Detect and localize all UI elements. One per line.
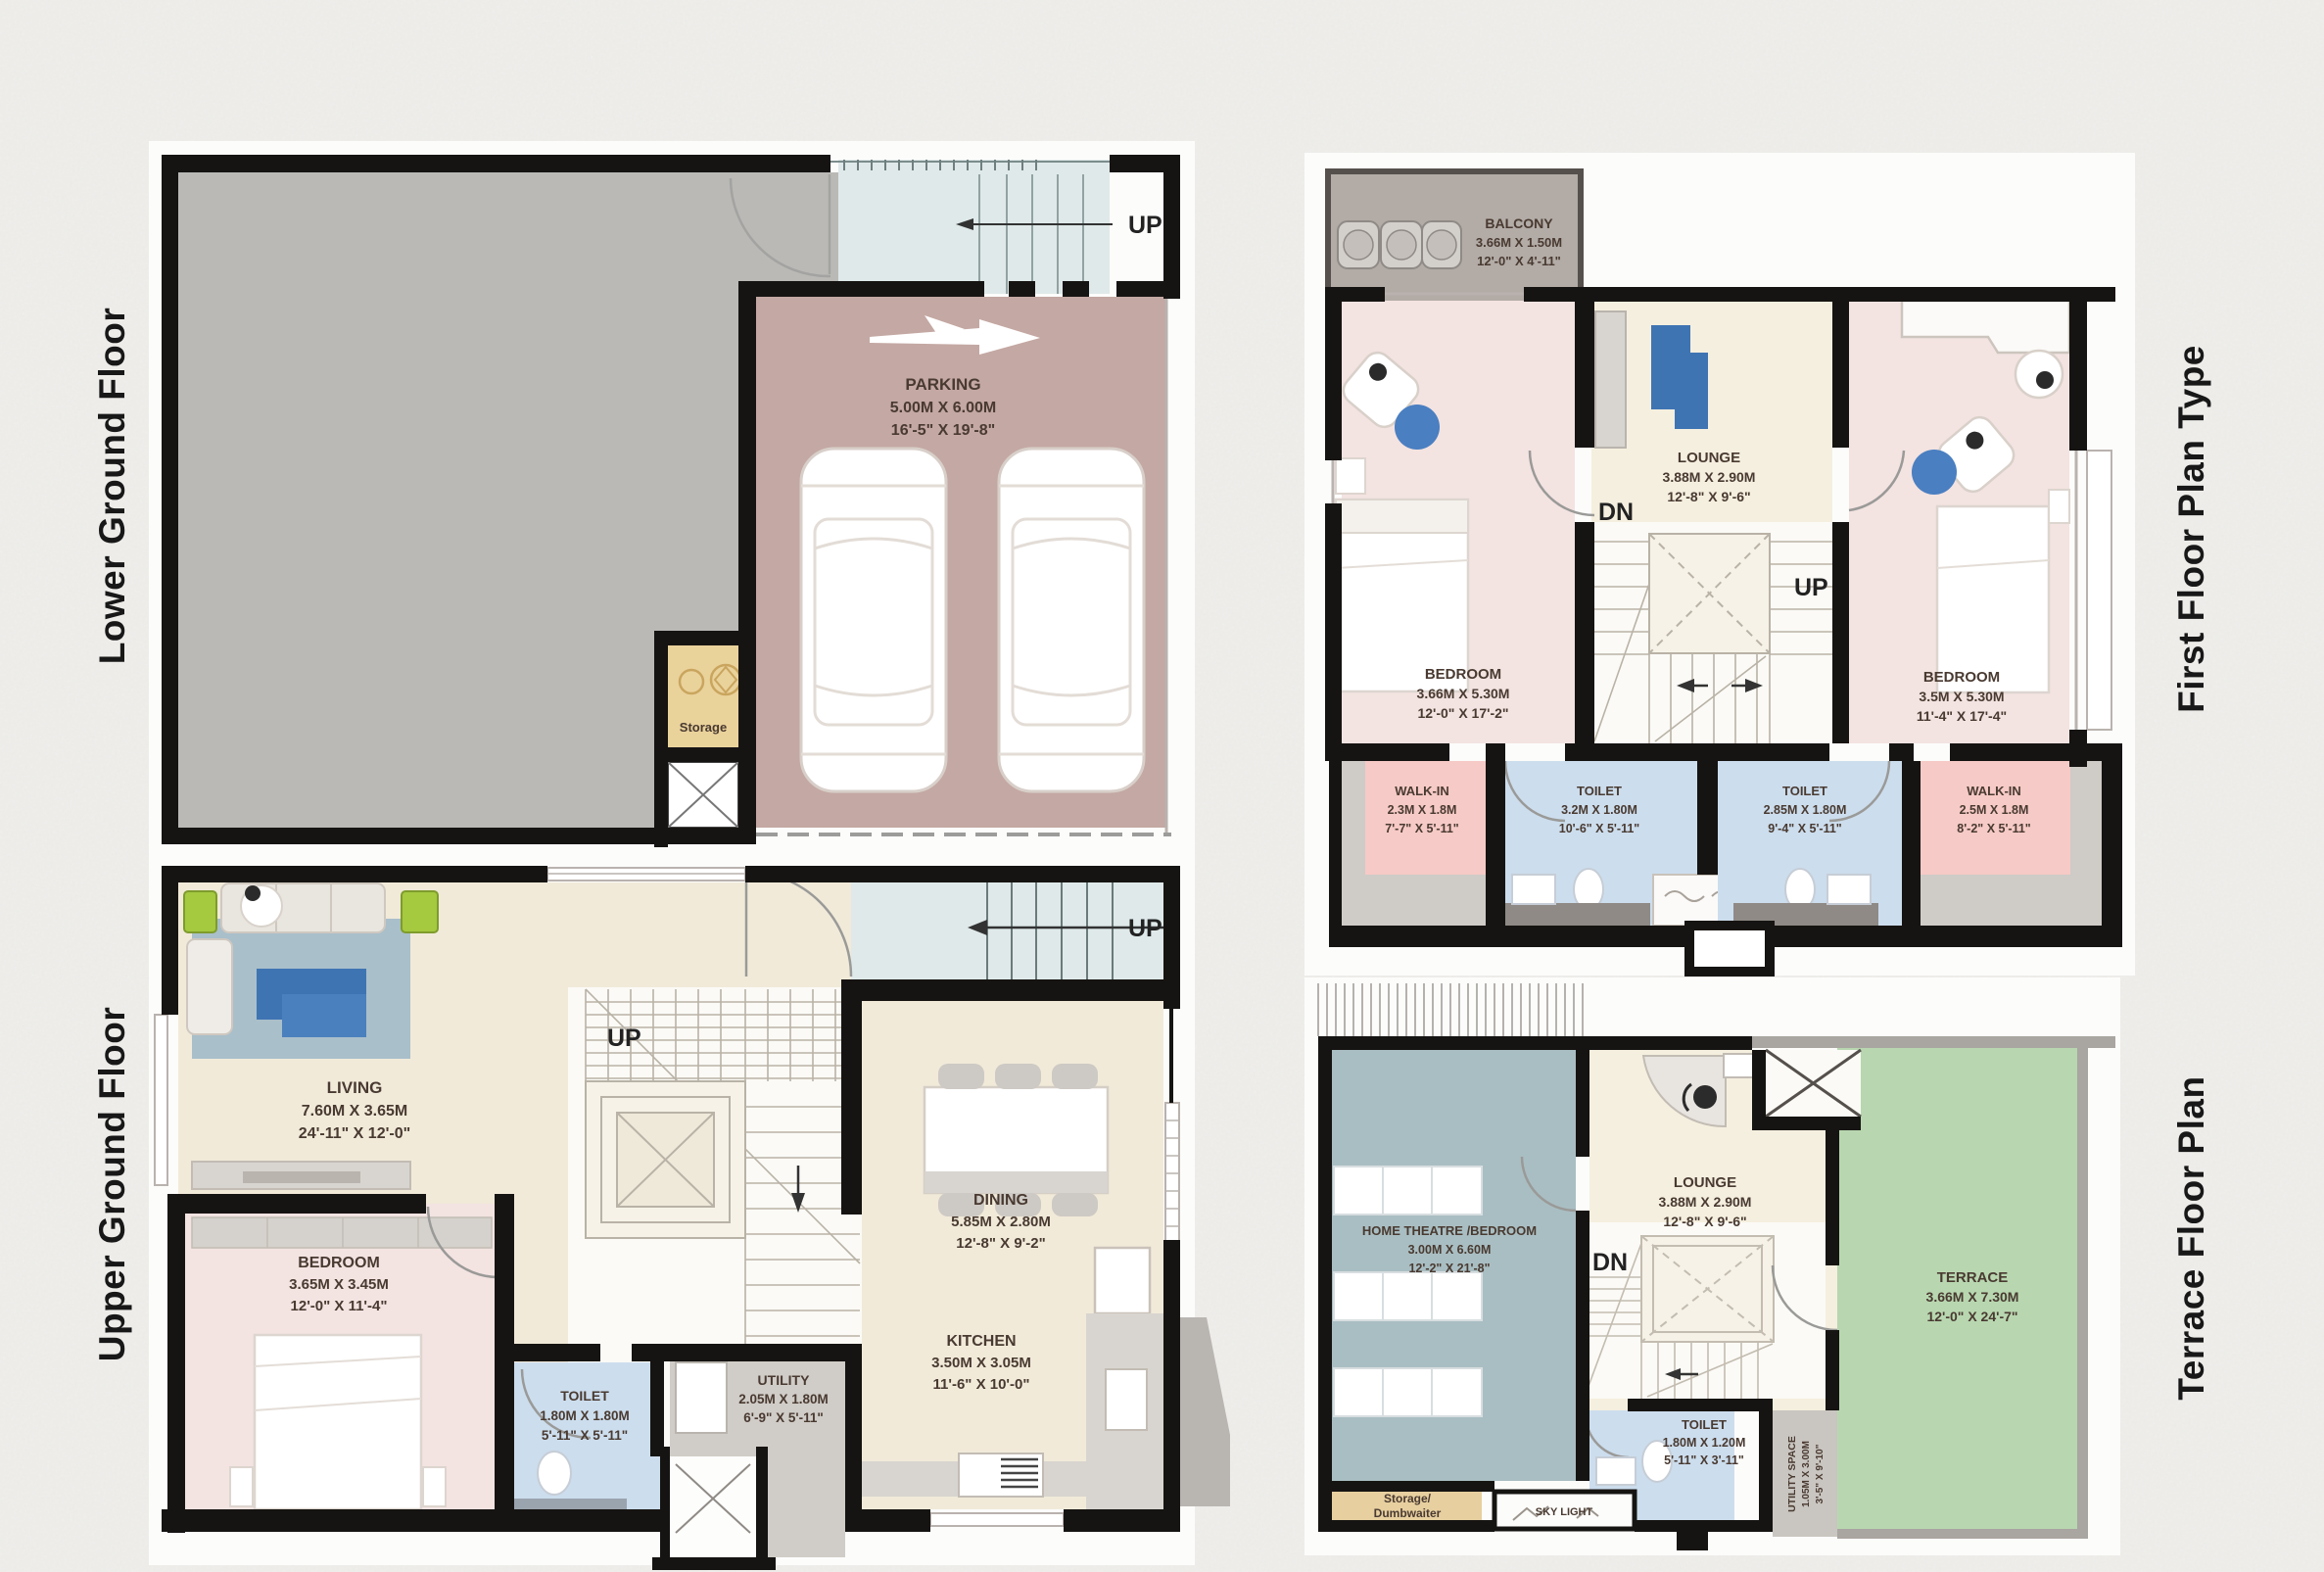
svg-text:12'-0" X 11'-4": 12'-0" X 11'-4" xyxy=(291,1298,388,1314)
svg-text:16'-5" X 19'-8": 16'-5" X 19'-8" xyxy=(891,422,995,439)
svg-text:Storage: Storage xyxy=(680,720,727,735)
svg-text:BEDROOM: BEDROOM xyxy=(1923,669,2000,686)
svg-text:2.5M X 1.8M: 2.5M X 1.8M xyxy=(1960,803,2029,817)
svg-text:5'-11" X 5'-11": 5'-11" X 5'-11" xyxy=(542,1428,628,1443)
svg-text:DN: DN xyxy=(1592,1249,1628,1276)
svg-text:6'-9" X 5'-11": 6'-9" X 5'-11" xyxy=(743,1410,824,1425)
svg-text:3.2M X 1.80M: 3.2M X 1.80M xyxy=(1561,803,1637,817)
svg-text:12'-8" X 9'-6": 12'-8" X 9'-6" xyxy=(1667,489,1750,504)
svg-text:PARKING: PARKING xyxy=(905,375,980,394)
svg-text:9'-4" X 5'-11": 9'-4" X 5'-11" xyxy=(1768,822,1842,835)
svg-text:BALCONY: BALCONY xyxy=(1485,215,1553,231)
svg-text:UTILITY: UTILITY xyxy=(758,1372,811,1388)
svg-text:12'-0" X 17'-2": 12'-0" X 17'-2" xyxy=(1417,705,1508,721)
svg-text:7'-7" X 5'-11": 7'-7" X 5'-11" xyxy=(1385,822,1459,835)
svg-text:3.66M X 5.30M: 3.66M X 5.30M xyxy=(1417,686,1510,701)
svg-text:10'-6" X 5'-11": 10'-6" X 5'-11" xyxy=(1559,822,1640,835)
svg-text:11'-6" X 10'-0": 11'-6" X 10'-0" xyxy=(933,1376,1030,1393)
svg-text:3.66M X 7.30M: 3.66M X 7.30M xyxy=(1926,1289,2019,1305)
svg-text:3.66M X 1.50M: 3.66M X 1.50M xyxy=(1476,235,1562,250)
svg-text:BEDROOM: BEDROOM xyxy=(1425,666,1501,683)
svg-text:12'-0" X 24'-7": 12'-0" X 24'-7" xyxy=(1926,1309,2017,1324)
svg-text:TERRACE: TERRACE xyxy=(1937,1269,2009,1286)
svg-text:3'-5" X 9'-10": 3'-5" X 9'-10" xyxy=(1815,1444,1826,1503)
svg-text:KITCHEN: KITCHEN xyxy=(946,1333,1016,1350)
svg-text:3.50M X 3.05M: 3.50M X 3.05M xyxy=(931,1355,1031,1371)
svg-text:2.3M X 1.8M: 2.3M X 1.8M xyxy=(1388,803,1457,817)
svg-text:TOILET: TOILET xyxy=(1782,784,1827,798)
svg-text:LOUNGE: LOUNGE xyxy=(1674,1174,1736,1191)
svg-text:1.05M X 3.00M: 1.05M X 3.00M xyxy=(1801,1441,1812,1507)
svg-text:SKY LIGHT: SKY LIGHT xyxy=(1536,1506,1593,1518)
svg-text:UP: UP xyxy=(1128,915,1162,942)
svg-text:Storage/: Storage/ xyxy=(1384,1492,1432,1505)
svg-text:Dumbwaiter: Dumbwaiter xyxy=(1374,1506,1442,1520)
svg-text:Upper Ground Floor: Upper Ground Floor xyxy=(92,1007,132,1362)
svg-text:WALK-IN: WALK-IN xyxy=(1967,784,2021,798)
svg-text:12'-2" X 21'-8": 12'-2" X 21'-8" xyxy=(1408,1262,1490,1275)
svg-text:Terrace Floor Plan: Terrace Floor Plan xyxy=(2171,1075,2211,1400)
svg-text:3.88M X 2.90M: 3.88M X 2.90M xyxy=(1659,1194,1752,1210)
svg-text:UP: UP xyxy=(607,1024,641,1052)
svg-text:5.85M X 2.80M: 5.85M X 2.80M xyxy=(951,1214,1051,1230)
svg-text:1.80M X 1.20M: 1.80M X 1.20M xyxy=(1663,1436,1746,1450)
svg-text:LIVING: LIVING xyxy=(327,1078,383,1097)
svg-text:Lower Ground Floor: Lower Ground Floor xyxy=(92,308,132,665)
svg-text:DN: DN xyxy=(1598,499,1634,526)
svg-text:TOILET: TOILET xyxy=(1577,784,1622,798)
svg-text:TOILET: TOILET xyxy=(560,1388,609,1404)
svg-text:DINING: DINING xyxy=(973,1192,1028,1209)
svg-text:8'-2" X 5'-11": 8'-2" X 5'-11" xyxy=(1957,822,2031,835)
svg-text:12'-8" X 9'-2": 12'-8" X 9'-2" xyxy=(956,1235,1045,1252)
svg-text:LOUNGE: LOUNGE xyxy=(1678,450,1740,466)
svg-text:3.65M X 3.45M: 3.65M X 3.45M xyxy=(289,1276,389,1293)
svg-text:7.60M X 3.65M: 7.60M X 3.65M xyxy=(302,1103,408,1119)
svg-text:First Floor Plan Type: First Floor Plan Type xyxy=(2171,345,2211,713)
svg-text:12'-8" X 9'-6": 12'-8" X 9'-6" xyxy=(1663,1214,1746,1229)
svg-text:3.00M X 6.60M: 3.00M X 6.60M xyxy=(1408,1243,1492,1257)
svg-text:2.85M X 1.80M: 2.85M X 1.80M xyxy=(1764,803,1847,817)
svg-text:12'-0" X 4'-11": 12'-0" X 4'-11" xyxy=(1477,254,1561,268)
svg-text:UTILITY SPACE: UTILITY SPACE xyxy=(1786,1436,1798,1512)
svg-text:UP: UP xyxy=(1794,574,1828,601)
svg-text:3.88M X 2.90M: 3.88M X 2.90M xyxy=(1663,469,1756,485)
svg-text:BEDROOM: BEDROOM xyxy=(298,1255,380,1271)
svg-text:UP: UP xyxy=(1128,212,1162,239)
svg-text:5.00M X 6.00M: 5.00M X 6.00M xyxy=(890,400,997,416)
svg-text:1.80M X 1.80M: 1.80M X 1.80M xyxy=(540,1408,630,1423)
svg-text:11'-4" X 17'-4": 11'-4" X 17'-4" xyxy=(1917,708,2007,724)
svg-text:5'-11" X 3'-11": 5'-11" X 3'-11" xyxy=(1664,1453,1744,1467)
svg-text:3.5M X 5.30M: 3.5M X 5.30M xyxy=(1919,689,2004,704)
svg-text:TOILET: TOILET xyxy=(1682,1417,1727,1432)
svg-text:HOME THEATRE /BEDROOM: HOME THEATRE /BEDROOM xyxy=(1362,1223,1537,1238)
svg-text:WALK-IN: WALK-IN xyxy=(1395,784,1449,798)
svg-text:2.05M X 1.80M: 2.05M X 1.80M xyxy=(738,1392,829,1406)
svg-text:24'-11" X 12'-0": 24'-11" X 12'-0" xyxy=(299,1125,410,1142)
